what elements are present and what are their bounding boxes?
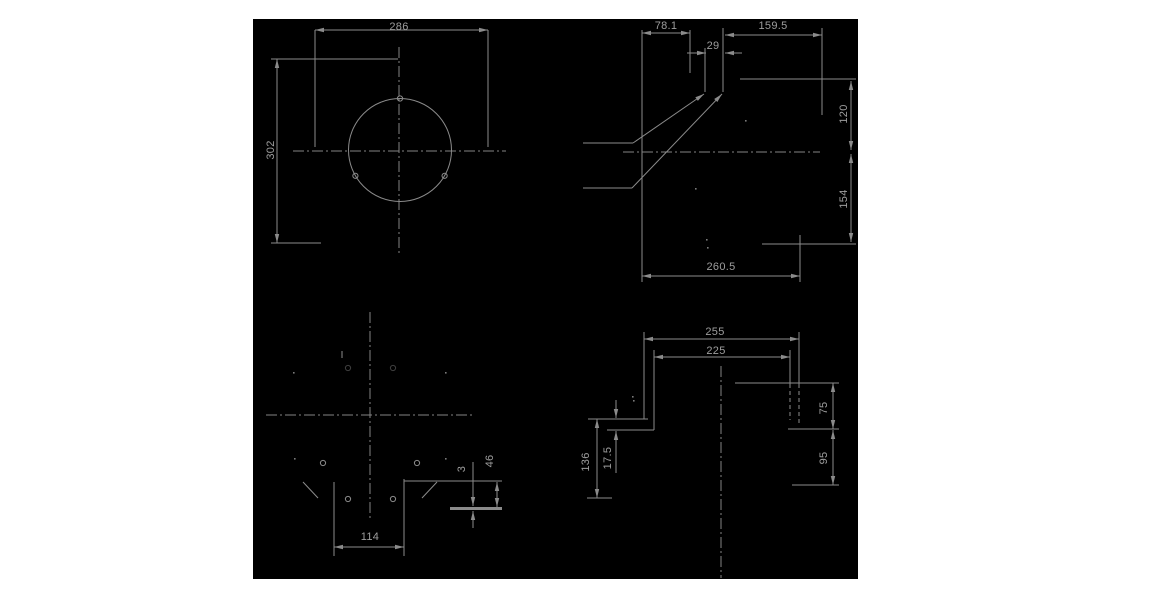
- artifact-speck: [445, 458, 447, 460]
- artifact-speck: [294, 458, 296, 460]
- dimension-label: 17.5: [602, 447, 614, 470]
- dimension-label: 95: [818, 452, 830, 465]
- artifact-speck: [706, 239, 708, 241]
- dimension-label: 29: [707, 40, 720, 52]
- dimension-label: 78.1: [655, 20, 678, 32]
- artifact-speck: [745, 120, 747, 122]
- drawing-sheet: 28630278.129159.5120154260.5114346255225…: [0, 0, 1160, 600]
- dimension-label: 75: [818, 402, 830, 415]
- dimension-label: 159.5: [758, 20, 787, 32]
- dimension-label: 136: [580, 452, 592, 471]
- artifact-speck: [633, 400, 635, 402]
- artifact-speck: [445, 372, 447, 374]
- dimension-label: 302: [265, 140, 277, 159]
- artifact-speck: [707, 247, 709, 249]
- artifact-speck: [632, 396, 634, 398]
- dimension-label: 3: [456, 466, 468, 472]
- dimension-label: 154: [838, 189, 850, 208]
- dimension-label: 225: [706, 345, 725, 357]
- dimension-label: 286: [389, 21, 408, 33]
- cad-drawing: 28630278.129159.5120154260.5114346255225…: [0, 0, 1160, 600]
- dimension-label: 255: [705, 326, 724, 338]
- dimension-label: 114: [361, 531, 379, 543]
- artifact-speck: [695, 188, 697, 190]
- dimension-label: 46: [484, 455, 496, 468]
- artifact-speck: [293, 372, 295, 374]
- dimension-label: 120: [838, 104, 850, 123]
- dimension-label: 260.5: [706, 261, 735, 273]
- drawing-canvas: [253, 19, 858, 579]
